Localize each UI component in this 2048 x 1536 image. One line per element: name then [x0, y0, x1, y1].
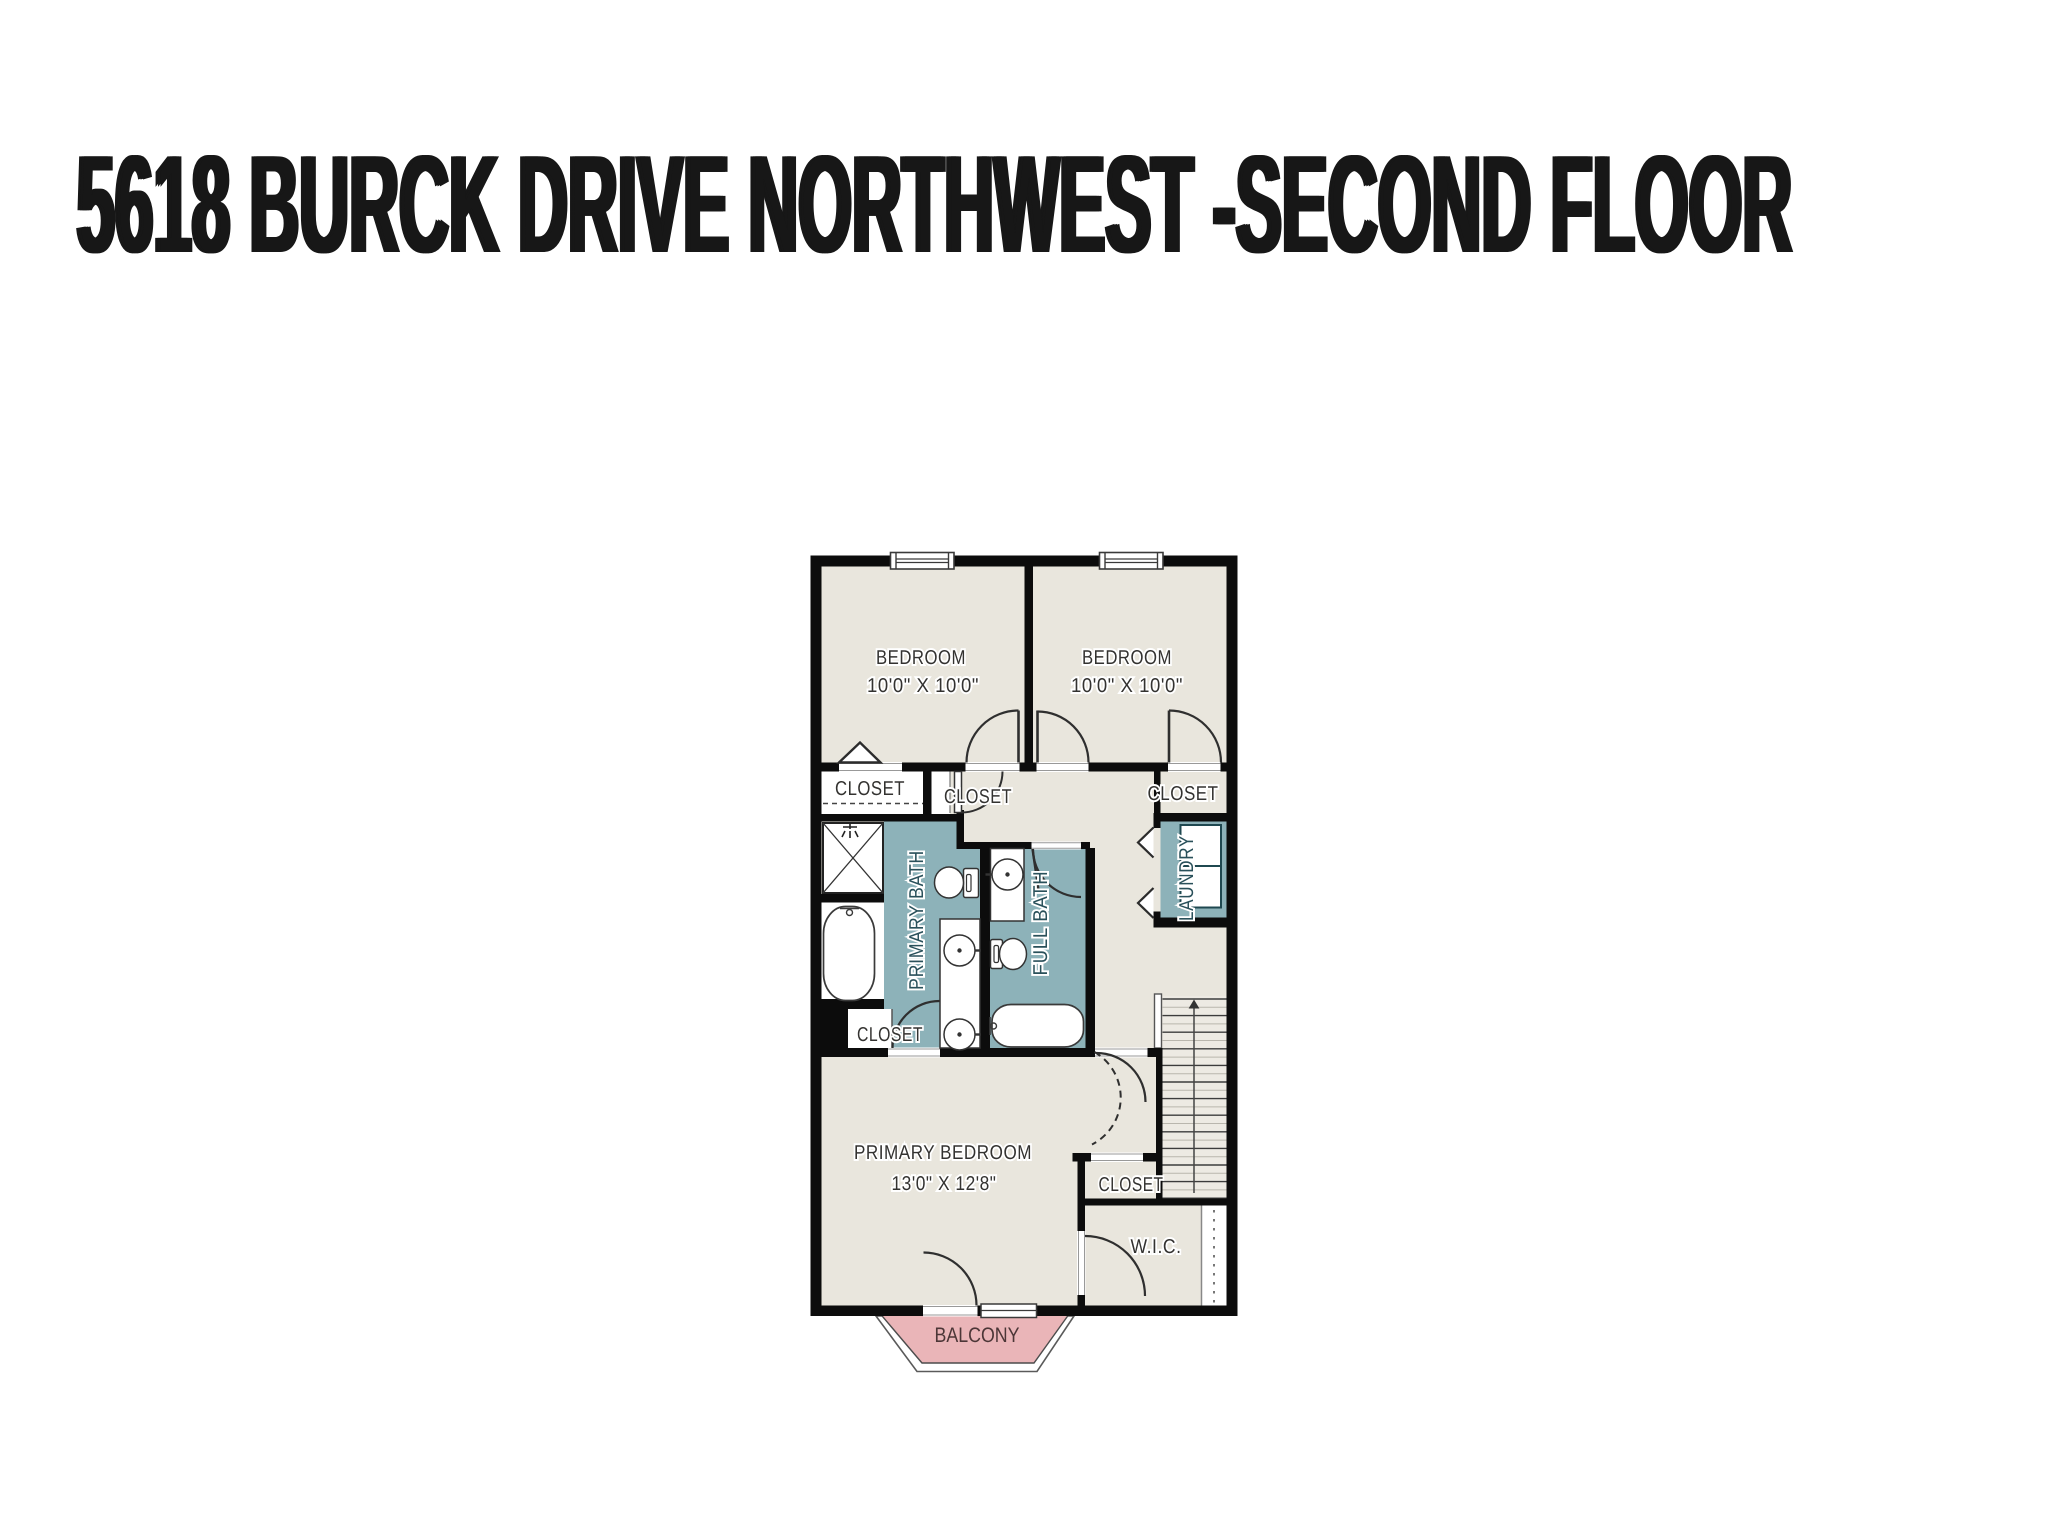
svg-text:CLOSET: CLOSET — [857, 1024, 923, 1046]
svg-text:BEDROOM: BEDROOM — [1082, 647, 1172, 669]
svg-text:13'0" X 12'8": 13'0" X 12'8" — [892, 1173, 997, 1195]
svg-text:LAUNDRY: LAUNDRY — [1176, 835, 1198, 921]
svg-text:W.I.C.: W.I.C. — [1131, 1236, 1182, 1258]
svg-text:10'0" X 10'0": 10'0" X 10'0" — [867, 675, 979, 697]
svg-text:5618 BURCK DRIVE NORTHWEST -SE: 5618 BURCK DRIVE NORTHWEST -SECOND FLOOR — [79, 127, 1795, 282]
svg-text:PRIMARY BEDROOM: PRIMARY BEDROOM — [854, 1142, 1032, 1164]
svg-text:PRIMARY BATH: PRIMARY BATH — [906, 850, 928, 990]
svg-text:10'0" X 10'0": 10'0" X 10'0" — [1071, 675, 1183, 697]
svg-text:CLOSET: CLOSET — [1099, 1174, 1164, 1196]
svg-text:BALCONY: BALCONY — [935, 1324, 1020, 1347]
svg-text:CLOSET: CLOSET — [1148, 783, 1219, 805]
svg-text:CLOSET: CLOSET — [835, 778, 905, 800]
svg-text:CLOSET: CLOSET — [944, 786, 1012, 808]
svg-text:FULL BATH: FULL BATH — [1030, 871, 1052, 976]
svg-text:BEDROOM: BEDROOM — [876, 647, 966, 669]
